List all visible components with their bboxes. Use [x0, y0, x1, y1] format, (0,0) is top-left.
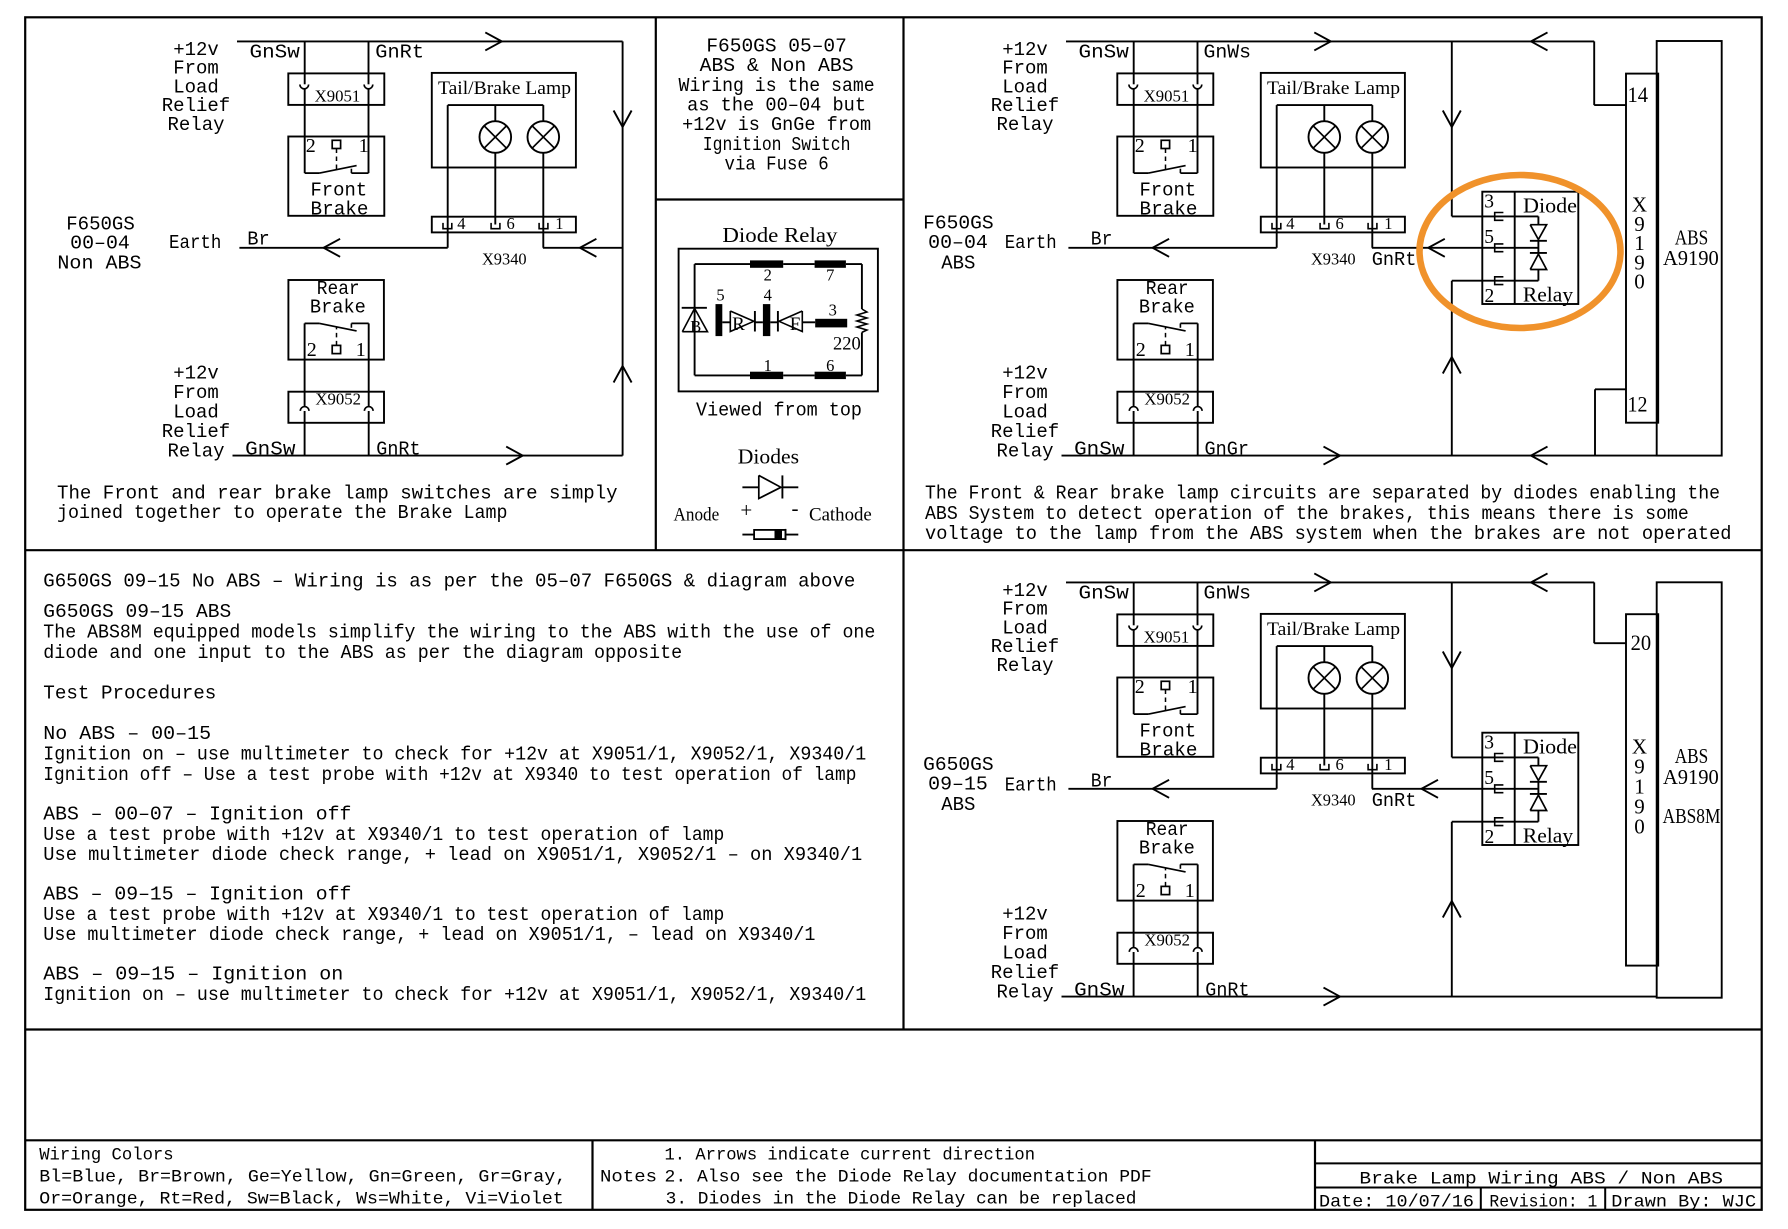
- svg-text:ABS & Non ABS: ABS & Non ABS: [700, 55, 854, 77]
- svg-text:Relay: Relay: [996, 982, 1053, 1004]
- svg-text:The ABS8M equipped models simp: The ABS8M equipped models simplify the w…: [43, 622, 875, 644]
- svg-text:1. Arrows indicate current dir: 1. Arrows indicate current direction: [665, 1146, 1036, 1166]
- svg-text:2: 2: [307, 339, 317, 361]
- svg-text:6: 6: [826, 356, 834, 375]
- svg-text:Wiring is the same: Wiring is the same: [679, 75, 875, 97]
- svg-text:GnGr: GnGr: [1205, 438, 1250, 460]
- svg-text:Br: Br: [247, 229, 269, 251]
- svg-text:1: 1: [1188, 135, 1198, 157]
- svg-text:Brake: Brake: [311, 199, 369, 221]
- svg-text:GnSw: GnSw: [245, 438, 296, 460]
- svg-text:Brake: Brake: [1140, 199, 1198, 221]
- svg-text:Revision: 1: Revision: 1: [1489, 1193, 1597, 1213]
- svg-text:Diode: Diode: [1523, 194, 1577, 218]
- svg-text:4: 4: [1286, 214, 1294, 233]
- svg-text:2: 2: [1136, 880, 1146, 902]
- svg-text:+: +: [740, 498, 752, 522]
- svg-text:Relay: Relay: [996, 114, 1053, 136]
- svg-text:Relay: Relay: [996, 441, 1053, 463]
- svg-text:09–15: 09–15: [928, 774, 988, 796]
- svg-text:GnRt: GnRt: [376, 438, 420, 460]
- svg-text:Br: Br: [1091, 229, 1113, 251]
- svg-text:2: 2: [306, 135, 316, 157]
- svg-text:Diode Relay: Diode Relay: [722, 223, 838, 247]
- svg-text:Brake: Brake: [1139, 297, 1195, 319]
- svg-text:14: 14: [1628, 82, 1649, 107]
- svg-text:Viewed from top: Viewed from top: [696, 400, 862, 422]
- svg-text:5: 5: [1484, 227, 1494, 248]
- svg-text:The Front & Rear brake lamp ci: The Front & Rear brake lamp circuits are…: [925, 483, 1720, 505]
- svg-text:via Fuse 6: via Fuse 6: [725, 154, 829, 176]
- svg-text:Anode: Anode: [674, 505, 720, 526]
- svg-text:5: 5: [716, 285, 724, 304]
- svg-text:joined together to operate the: joined together to operate the Brake Lam…: [57, 502, 508, 524]
- svg-text:00–04: 00–04: [928, 232, 988, 254]
- svg-text:voltage to the lamp from the A: voltage to the lamp from the ABS system …: [925, 523, 1732, 545]
- svg-text:GnRt: GnRt: [1372, 249, 1417, 271]
- svg-text:Ignition Switch: Ignition Switch: [703, 134, 851, 156]
- svg-text:GnSw: GnSw: [1079, 582, 1130, 604]
- svg-text:0: 0: [1634, 270, 1645, 294]
- svg-text:Non ABS: Non ABS: [57, 253, 141, 275]
- svg-text:X9052: X9052: [1144, 931, 1190, 950]
- svg-text:ABS System to detect operation: ABS System to detect operation of the br…: [925, 503, 1689, 525]
- svg-text:Ignition on – use multimeter t: Ignition on – use multimeter to check fo…: [43, 744, 866, 766]
- svg-text:diode and one input to the ABS: diode and one input to the ABS as per th…: [43, 642, 682, 664]
- svg-text:B: B: [690, 317, 701, 336]
- svg-text:Earth: Earth: [169, 232, 221, 254]
- svg-text:Earth: Earth: [1005, 232, 1057, 254]
- svg-text:4: 4: [764, 286, 772, 305]
- svg-text:2: 2: [764, 266, 772, 285]
- svg-text:12: 12: [1628, 392, 1648, 417]
- svg-text:3: 3: [829, 301, 837, 320]
- svg-text:X9052: X9052: [1144, 390, 1190, 409]
- svg-text:2: 2: [1485, 827, 1495, 848]
- svg-text:20: 20: [1631, 630, 1652, 655]
- svg-text:220: 220: [833, 335, 861, 355]
- svg-text:ABS – 00–07 – Ignition off: ABS – 00–07 – Ignition off: [43, 804, 351, 826]
- svg-text:No ABS – 00–15: No ABS – 00–15: [43, 723, 211, 745]
- svg-text:1: 1: [1384, 755, 1392, 774]
- svg-text:GnSw: GnSw: [250, 41, 301, 63]
- svg-text:GnRt: GnRt: [1205, 979, 1249, 1001]
- svg-text:+12v is GnGe from: +12v is GnGe from: [682, 114, 871, 136]
- svg-text:4: 4: [457, 214, 465, 233]
- svg-text:1: 1: [1185, 339, 1195, 361]
- svg-text:2: 2: [1135, 135, 1145, 157]
- svg-text:Ignition off – Use a test prob: Ignition off – Use a test probe with +12…: [43, 764, 856, 786]
- svg-text:X9340: X9340: [1311, 790, 1356, 809]
- svg-text:2: 2: [1136, 339, 1146, 361]
- svg-text:-: -: [792, 496, 799, 520]
- svg-text:1: 1: [1188, 676, 1198, 698]
- svg-text:Relay: Relay: [1523, 824, 1574, 848]
- svg-text:Brake: Brake: [1140, 740, 1198, 762]
- svg-text:2: 2: [1135, 676, 1145, 698]
- svg-text:ABS: ABS: [941, 252, 975, 274]
- svg-text:X9051: X9051: [1144, 627, 1190, 646]
- svg-text:GnWs: GnWs: [1204, 41, 1252, 63]
- svg-text:2: 2: [1485, 286, 1495, 307]
- svg-text:ABS – 09–15 – Ignition on: ABS – 09–15 – Ignition on: [43, 964, 343, 986]
- svg-text:F: F: [790, 314, 801, 335]
- svg-text:GnRt: GnRt: [1372, 790, 1417, 812]
- svg-text:Or=Orange, Rt=Red, Sw=Black, W: Or=Orange, Rt=Red, Sw=Black, Ws=White, V…: [39, 1190, 563, 1210]
- svg-text:1: 1: [1384, 214, 1392, 233]
- svg-text:G650GS 09–15 ABS: G650GS 09–15 ABS: [43, 601, 231, 623]
- svg-text:6: 6: [507, 214, 515, 233]
- svg-text:Date: 10/07/16: Date: 10/07/16: [1319, 1193, 1474, 1213]
- svg-text:ABS – 09–15 – Ignition off: ABS – 09–15 – Ignition off: [43, 884, 351, 906]
- svg-text:X9052: X9052: [315, 390, 361, 409]
- svg-text:Tail/Brake Lamp: Tail/Brake Lamp: [438, 79, 571, 99]
- svg-text:Tail/Brake Lamp: Tail/Brake Lamp: [1267, 79, 1400, 99]
- svg-text:Use multimeter diode check ran: Use multimeter diode check range, + lead…: [43, 844, 862, 866]
- svg-text:X9051: X9051: [315, 86, 361, 105]
- svg-text:7: 7: [826, 266, 834, 285]
- svg-text:Relay: Relay: [167, 114, 224, 136]
- svg-text:Use a test probe with +12v at: Use a test probe with +12v at X9340/1 to…: [43, 824, 724, 846]
- svg-text:6: 6: [1336, 214, 1344, 233]
- svg-text:GnSw: GnSw: [1079, 41, 1130, 63]
- svg-text:Brake: Brake: [1139, 838, 1195, 860]
- svg-text:A9190: A9190: [1663, 765, 1719, 789]
- svg-text:X9340: X9340: [482, 249, 527, 268]
- svg-text:3: 3: [1484, 732, 1494, 753]
- svg-text:5: 5: [1484, 768, 1494, 789]
- svg-text:R: R: [732, 314, 745, 335]
- svg-text:A9190: A9190: [1663, 246, 1719, 270]
- svg-text:1: 1: [764, 356, 772, 375]
- svg-text:1: 1: [1185, 880, 1195, 902]
- svg-text:Brake: Brake: [310, 297, 366, 319]
- svg-text:3: 3: [1484, 191, 1494, 212]
- svg-text:00–04: 00–04: [70, 232, 130, 254]
- svg-text:Relay: Relay: [1523, 283, 1574, 307]
- svg-text:3. Diodes in the Diode Relay c: 3. Diodes in the Diode Relay can be repl…: [666, 1190, 1137, 1210]
- svg-text:Earth: Earth: [1005, 774, 1057, 796]
- svg-text:Test Procedures: Test Procedures: [43, 683, 216, 705]
- svg-text:Relay: Relay: [167, 441, 224, 463]
- svg-text:X9340: X9340: [1311, 249, 1356, 268]
- svg-text:as the 00–04 but: as the 00–04 but: [687, 95, 866, 117]
- svg-text:Brake Lamp Wiring ABS / Non AB: Brake Lamp Wiring ABS / Non ABS: [1359, 1170, 1723, 1190]
- svg-text:Use multimeter diode check ran: Use multimeter diode check range, + lead…: [43, 924, 815, 946]
- svg-text:Bl=Blue, Br=Brown, Ge=Yellow,: Bl=Blue, Br=Brown, Ge=Yellow, Gn=Green, …: [39, 1168, 566, 1188]
- svg-text:G650GS 09–15 No ABS – Wiring i: G650GS 09–15 No ABS – Wiring is as per t…: [43, 571, 855, 593]
- svg-text:6: 6: [1336, 755, 1344, 774]
- svg-text:Tail/Brake Lamp: Tail/Brake Lamp: [1267, 620, 1400, 640]
- svg-text:Diodes: Diodes: [738, 445, 799, 469]
- svg-text:X9051: X9051: [1144, 86, 1190, 105]
- svg-text:1: 1: [356, 339, 366, 361]
- svg-text:0: 0: [1634, 814, 1645, 838]
- svg-text:Relay: Relay: [996, 655, 1053, 677]
- svg-text:ABS: ABS: [941, 794, 975, 816]
- svg-text:Ignition on – use multimeter t: Ignition on – use multimeter to check fo…: [43, 984, 866, 1006]
- svg-text:GnSw: GnSw: [1074, 438, 1125, 460]
- svg-text:Diode: Diode: [1523, 735, 1577, 759]
- svg-text:GnRt: GnRt: [375, 41, 424, 63]
- svg-text:F650GS 05–07: F650GS 05–07: [706, 35, 847, 57]
- svg-text:2. Also see the Diode Relay do: 2. Also see the Diode Relay documentatio…: [665, 1168, 1152, 1188]
- svg-text:1: 1: [555, 214, 563, 233]
- svg-text:Wiring Colors: Wiring Colors: [39, 1146, 173, 1166]
- svg-text:GnSw: GnSw: [1074, 979, 1125, 1001]
- svg-text:Drawn By: WJC: Drawn By: WJC: [1611, 1193, 1756, 1213]
- svg-text:Cathode: Cathode: [809, 505, 872, 526]
- svg-text:4: 4: [1286, 755, 1294, 774]
- svg-text:Br: Br: [1091, 771, 1113, 793]
- svg-text:GnWs: GnWs: [1204, 582, 1252, 604]
- svg-text:ABS8M: ABS8M: [1663, 804, 1721, 828]
- svg-text:1: 1: [359, 135, 369, 157]
- svg-text:Notes: Notes: [600, 1168, 657, 1188]
- svg-text:Use a test probe with +12v at: Use a test probe with +12v at X9340/1 to…: [43, 904, 724, 926]
